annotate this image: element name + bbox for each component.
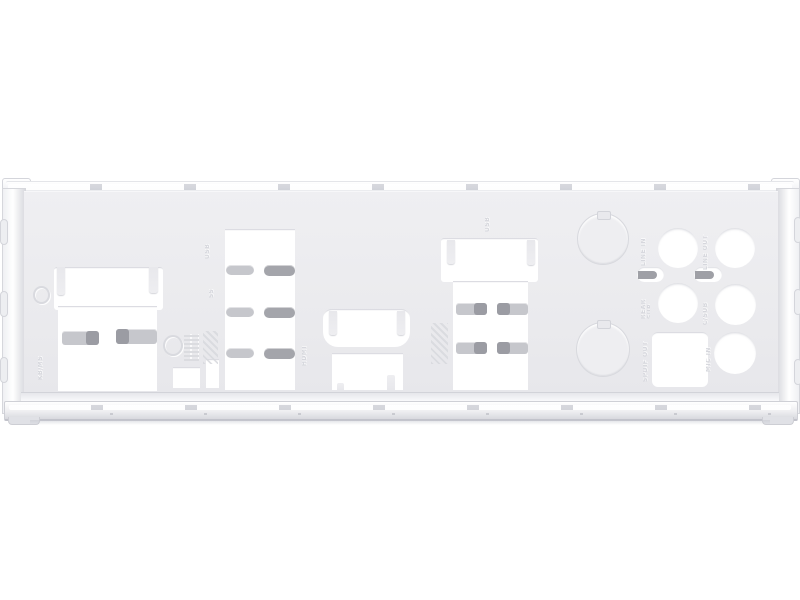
spring-finger: [456, 342, 487, 354]
right-flange-bump: [794, 289, 800, 315]
combo-port-left-top-cutout: [54, 267, 163, 310]
spring-finger: [264, 307, 295, 318]
embossed-label-left: KB/MS: [38, 350, 50, 380]
embossed-stamp: [203, 331, 218, 364]
combo-port-right-lower-cutout: [453, 281, 528, 390]
embossed-label-usb3: USB: [485, 206, 497, 232]
audio-jack-hole: [715, 284, 756, 325]
spring-finger: [226, 307, 254, 317]
bottom-shadow: [30, 420, 770, 425]
spring-finger: [497, 342, 528, 354]
retention-tab: [149, 267, 158, 293]
embossed-label-audio: LINE IN: [641, 232, 650, 266]
small-cutout: [173, 367, 200, 388]
left-flange-bump: [0, 357, 8, 383]
spring-finger: [226, 348, 254, 358]
spring-finger: [264, 348, 295, 359]
shield-right-flange: [776, 188, 800, 414]
right-flange-bump: [794, 359, 800, 385]
knockout-blank: [576, 322, 630, 377]
retention-tab: [337, 383, 344, 390]
embossed-label-hdmi: HDMI: [302, 328, 315, 366]
retention-tab: [527, 240, 535, 265]
embossed-label-audio: REAR SUR: [641, 285, 650, 319]
spring-finger: [264, 265, 295, 276]
bottom-rail-spring-fingers: [9, 405, 791, 410]
retention-tab: [397, 311, 405, 335]
embossed-label-audio: C/SUB: [703, 283, 712, 325]
embossed-stamp: [431, 323, 448, 364]
spring-finger: [497, 303, 528, 315]
retention-tab: [387, 375, 395, 390]
left-flange-bump: [0, 291, 8, 317]
audio-jack-hole: [714, 332, 756, 374]
left-flange-bump: [0, 219, 8, 245]
product-photo-canvas: KB/MS USB SS HDMI USB LINE IN LINE OUT R…: [0, 0, 800, 600]
embossed-label-audio: MIC IN: [706, 336, 715, 372]
embossed-label-usb: USB: [205, 237, 217, 259]
top-rail-spring-fingers: [8, 184, 792, 190]
audio-jack-hole: [715, 228, 755, 268]
spring-finger: [62, 331, 99, 345]
retention-tab: [447, 240, 455, 264]
retention-tab: [329, 311, 337, 335]
embossed-label-audio: LINE OUT: [703, 230, 712, 270]
combo-port-left-lower-cutout: [58, 306, 157, 391]
spring-finger: [638, 271, 657, 279]
embossed-ring: [33, 286, 50, 304]
spdif-square-hole: [652, 332, 708, 387]
spring-finger: [695, 271, 714, 279]
embossed-label-spdif: SPDIF OUT: [643, 334, 652, 382]
retention-tab: [57, 267, 65, 295]
bottom-rail-rivets: [19, 413, 783, 415]
knockout-blank: [577, 213, 629, 265]
embossed-ring: [163, 335, 183, 356]
spring-finger: [226, 265, 254, 275]
combo-port-right-top-cutout: [441, 238, 538, 282]
embossed-stamp: [184, 334, 199, 361]
audio-jack-hole: [658, 283, 698, 323]
spring-finger: [456, 303, 487, 315]
shield-bottom-rail: [4, 401, 798, 421]
right-flange-bump: [794, 217, 800, 243]
embossed-label-usb-speed: SS: [209, 284, 219, 298]
spring-finger: [116, 329, 157, 344]
audio-jack-hole: [658, 228, 698, 268]
